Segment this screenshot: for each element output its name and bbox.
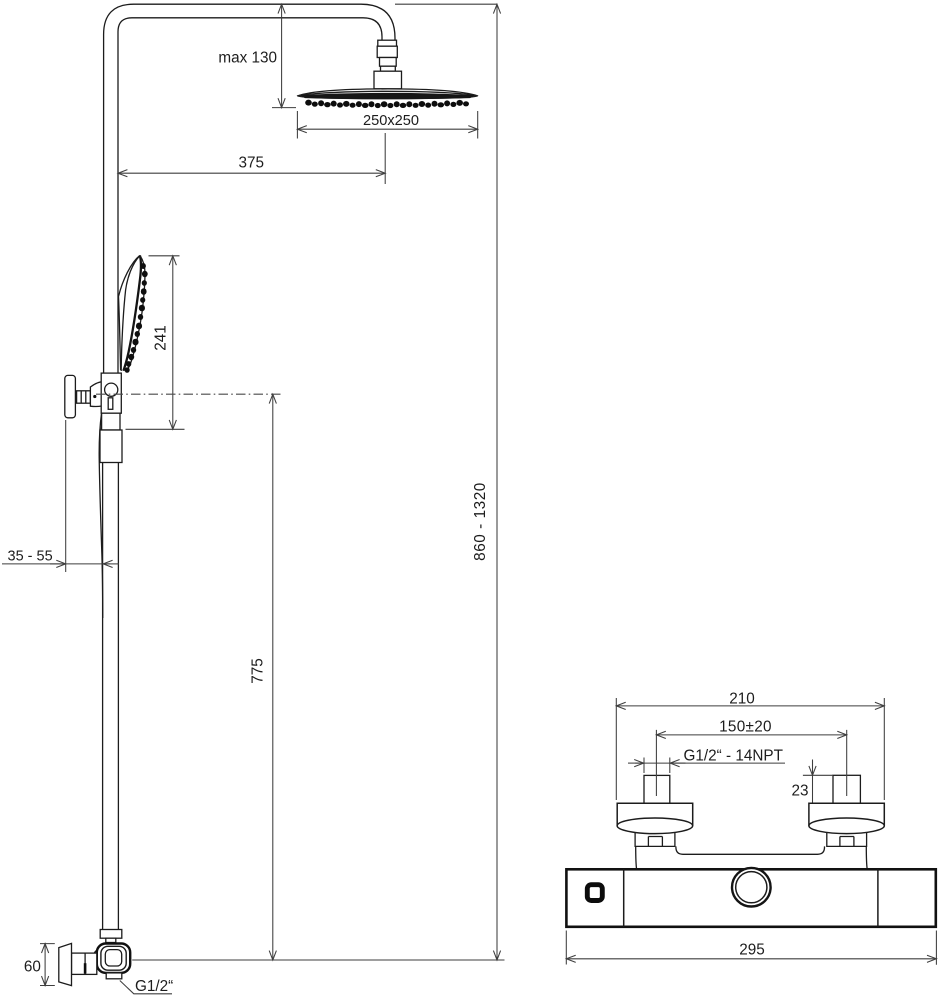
svg-text:860 - 1320: 860 - 1320	[472, 482, 489, 561]
svg-text:250x250: 250x250	[363, 113, 419, 129]
svg-text:210: 210	[729, 691, 755, 708]
svg-text:max 130: max 130	[218, 50, 277, 67]
svg-text:241: 241	[152, 325, 169, 351]
svg-text:23: 23	[792, 782, 809, 799]
svg-text:35 - 55: 35 - 55	[8, 549, 53, 565]
svg-text:375: 375	[239, 155, 265, 172]
svg-text:G1/2“: G1/2“	[135, 978, 173, 995]
svg-text:295: 295	[739, 942, 765, 959]
svg-text:G1/2“ - 14NPT: G1/2“ - 14NPT	[684, 747, 783, 764]
svg-text:150±20: 150±20	[719, 718, 772, 735]
svg-text:60: 60	[24, 959, 41, 976]
svg-text:775: 775	[250, 658, 267, 684]
